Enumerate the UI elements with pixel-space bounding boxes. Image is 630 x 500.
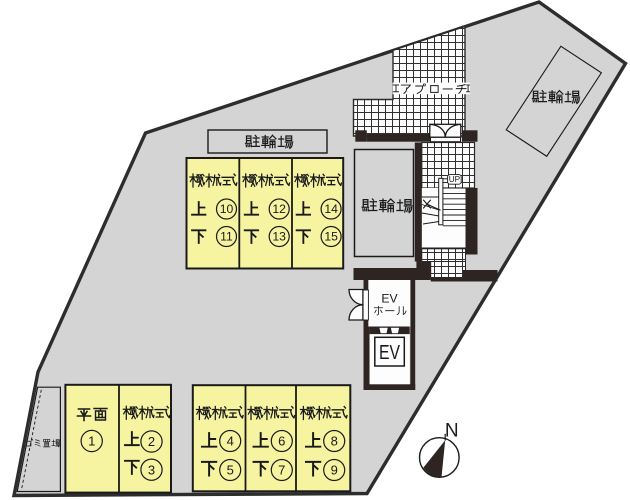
svg-text:2: 2 <box>148 434 155 449</box>
svg-text:6: 6 <box>278 434 285 449</box>
svg-text:3: 3 <box>148 462 155 477</box>
svg-text:8: 8 <box>331 434 338 449</box>
svg-text:7: 7 <box>278 463 285 478</box>
svg-text:10: 10 <box>220 202 234 216</box>
svg-text:14: 14 <box>324 202 338 216</box>
svg-text:1: 1 <box>88 434 95 449</box>
svg-text:12: 12 <box>272 202 286 216</box>
svg-text:13: 13 <box>272 230 286 244</box>
svg-text:UP: UP <box>449 175 461 184</box>
svg-text:N: N <box>445 420 459 441</box>
svg-text:EV: EV <box>381 292 398 306</box>
svg-text:5: 5 <box>227 463 234 478</box>
svg-text:15: 15 <box>324 230 338 244</box>
svg-text:11: 11 <box>220 230 233 244</box>
svg-text:9: 9 <box>331 463 338 478</box>
svg-text:EV: EV <box>379 342 401 364</box>
svg-text:4: 4 <box>227 434 234 449</box>
